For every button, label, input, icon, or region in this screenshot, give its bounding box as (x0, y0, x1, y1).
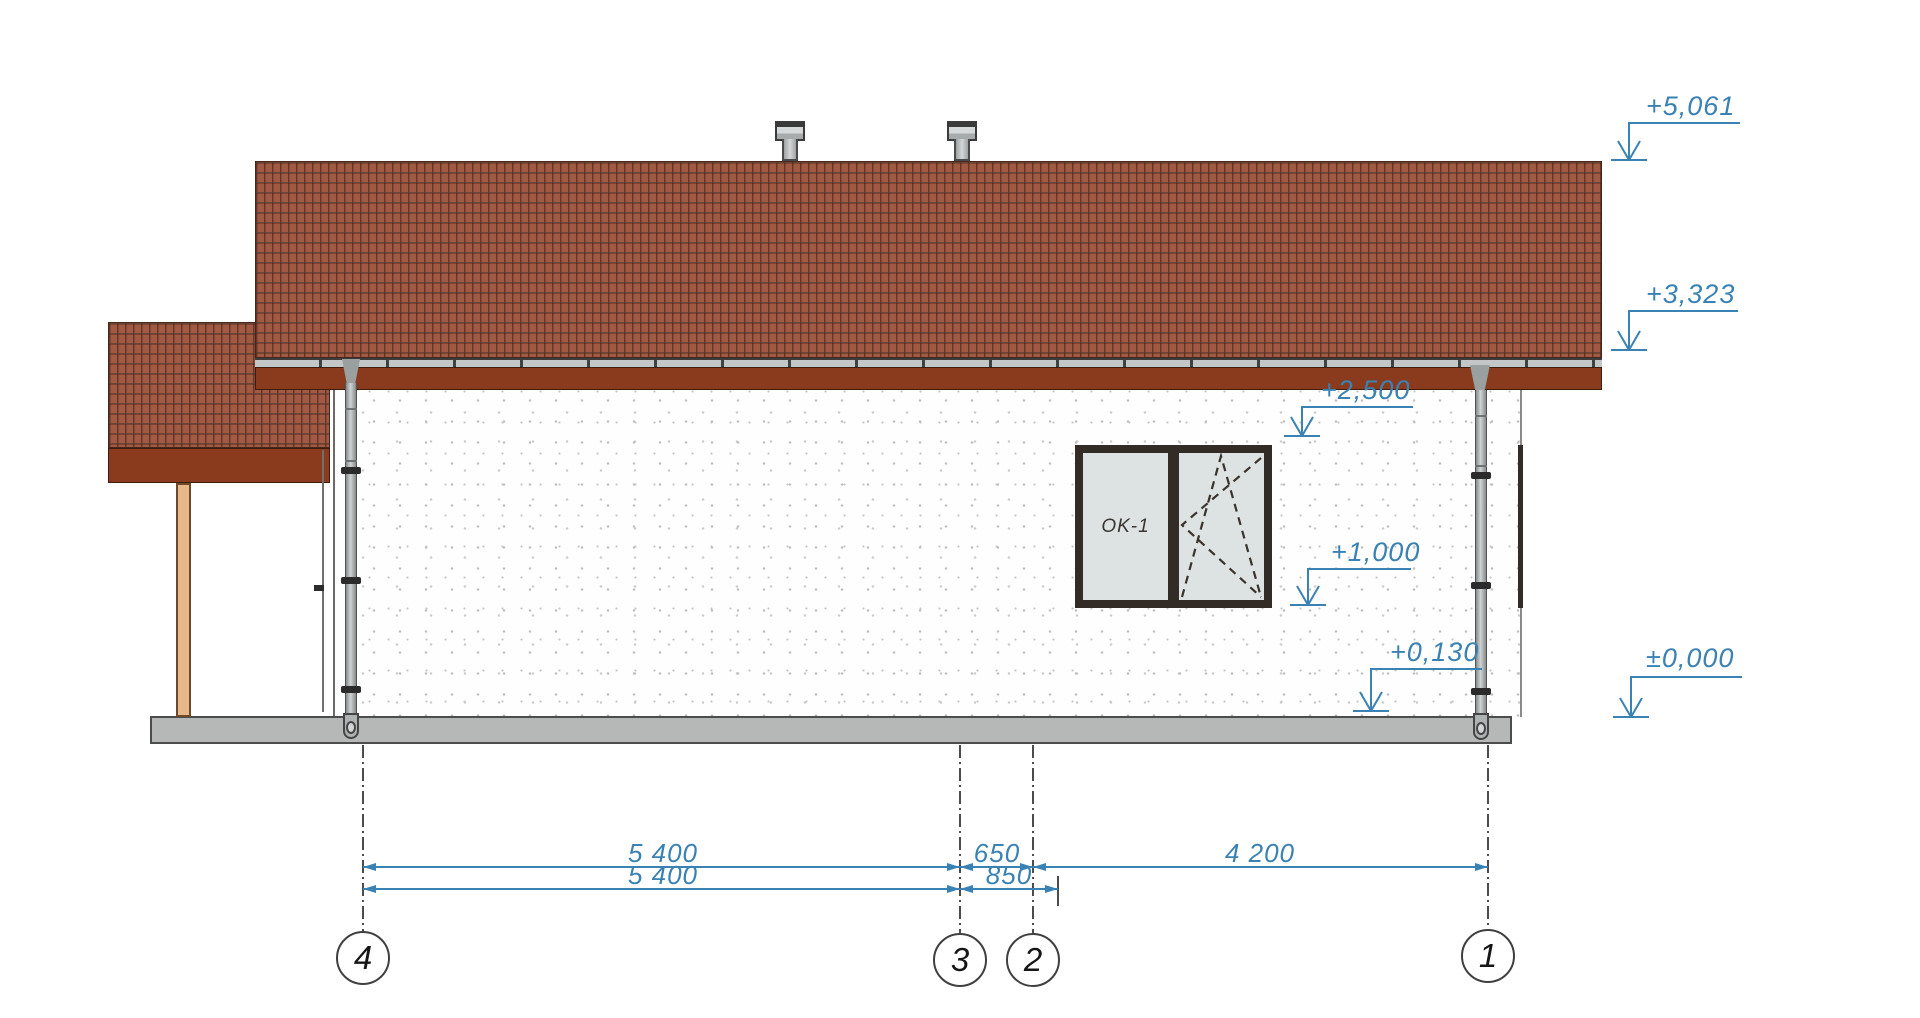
porch-fascia-board (108, 448, 330, 483)
main-roof-tiles (255, 161, 1602, 358)
leader-line (1307, 568, 1411, 570)
elevation-arrow-icon (1630, 697, 1643, 717)
axis-bubble-2: 2 (1006, 933, 1060, 987)
level-tick (1611, 349, 1647, 351)
axis-line-2 (1032, 745, 1034, 933)
axis-bubble-3: 3 (933, 933, 987, 987)
leader-drop (1630, 676, 1632, 717)
pipe-collar (341, 686, 361, 693)
pipe-collar (1471, 472, 1491, 479)
elevation-value: +3,323 (1646, 280, 1735, 308)
axis-line-3 (959, 745, 961, 933)
level-tick (1611, 159, 1647, 161)
downspout-outlet-eye (346, 721, 356, 734)
porch-post (176, 483, 191, 717)
elevation-arrow-icon (1628, 140, 1641, 160)
pipe-collar (1471, 582, 1491, 589)
pipe-seam (345, 408, 357, 410)
level-tick (1613, 716, 1649, 718)
leader-line (1301, 406, 1413, 408)
window-mullion (1168, 453, 1179, 600)
leader-line (1628, 122, 1740, 124)
leader-line (1628, 310, 1738, 312)
axis-number: 1 (1479, 937, 1497, 975)
elevation-drawing-canvas: OK-1 +5,061 (0, 0, 1920, 1018)
door-edge-profile (322, 450, 324, 712)
pipe-collar (341, 577, 361, 584)
door-handle (314, 585, 324, 591)
elevation-value: +1,000 (1331, 538, 1420, 566)
axis-line-1 (1487, 745, 1489, 929)
axis-number: 4 (354, 939, 372, 977)
pipe-seam (1475, 465, 1487, 467)
elevation-arrow-icon (1628, 330, 1641, 350)
dim-arrow-icon (363, 885, 376, 893)
vent-neck (954, 139, 970, 161)
right-window-edge-profile (1518, 445, 1523, 608)
dim-label-850: 850 (959, 862, 1059, 888)
leader-line (1630, 676, 1742, 678)
dim-arrow-icon (1475, 863, 1488, 871)
elevation-value: +5,061 (1646, 92, 1735, 120)
tilt-turn-sash-symbol (1179, 453, 1264, 600)
level-tick (1284, 435, 1320, 437)
vent-neck (782, 139, 798, 161)
downspout-pipe (345, 383, 357, 717)
level-tick (1290, 604, 1326, 606)
axis-bubble-1: 1 (1461, 929, 1515, 983)
elevation-value: +0,130 (1390, 638, 1479, 666)
pipe-seam (345, 460, 357, 462)
level-tick (1353, 710, 1389, 712)
dimension-line-row1 (363, 866, 1488, 868)
leader-drop (1628, 310, 1630, 350)
elevation-value: +2,500 (1321, 376, 1410, 404)
vent-cap-icon (775, 121, 805, 141)
leader-line (1370, 668, 1482, 670)
dim-label-5400-bottom: 5 400 (593, 862, 733, 888)
downspout-outlet-eye (1476, 722, 1486, 735)
axis-number: 3 (951, 941, 969, 979)
dim-arrow-icon (363, 863, 376, 871)
axis-number: 2 (1024, 941, 1042, 979)
window-label: OK-1 (1083, 453, 1168, 600)
leader-drop (1370, 668, 1372, 711)
dim-label-4200: 4 200 (1190, 840, 1330, 866)
axis-line-4 (362, 745, 364, 931)
pipe-collar (1471, 688, 1491, 695)
vent-cap-icon (947, 121, 977, 141)
elevation-value: ±0,000 (1646, 644, 1734, 672)
pipe-collar (341, 467, 361, 474)
pipe-seam (1475, 415, 1487, 417)
window-ok1: OK-1 (1075, 445, 1272, 608)
axis-bubble-4: 4 (336, 931, 390, 985)
